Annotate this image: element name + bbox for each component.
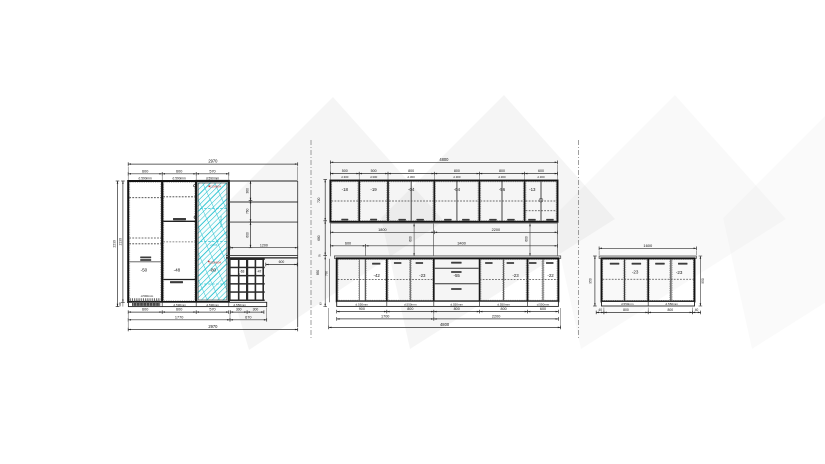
svg-text:600: 600: [524, 236, 528, 242]
svg-text:900: 900: [359, 307, 365, 311]
svg-text:600x2130: 600x2130: [219, 215, 223, 227]
svg-text:d.550mm: d.550mm: [404, 303, 417, 307]
svg-text:680: 680: [317, 235, 321, 241]
svg-text:-50: -50: [141, 267, 148, 272]
svg-text:800: 800: [499, 169, 505, 173]
svg-text:600: 600: [408, 236, 412, 242]
svg-text:100: 100: [118, 302, 122, 307]
svg-text:760: 760: [245, 208, 249, 214]
svg-text:1600: 1600: [643, 243, 653, 248]
svg-text:600: 600: [540, 307, 546, 311]
svg-text:d.590mm: d.590mm: [173, 176, 187, 180]
svg-text:d.300: d.300: [407, 175, 415, 179]
svg-text:-23: -23: [676, 270, 683, 275]
svg-text:2200: 2200: [492, 315, 500, 319]
svg-text:800: 800: [454, 169, 460, 173]
svg-text:-55: -55: [454, 273, 461, 278]
svg-text:2130: 2130: [118, 238, 122, 246]
svg-text:d.590mm: d.590mm: [207, 303, 220, 307]
svg-text:d.550mm: d.550mm: [356, 303, 369, 307]
svg-text:-19: -19: [370, 187, 377, 192]
svg-text:-23: -23: [632, 270, 639, 275]
svg-text:570: 570: [209, 169, 215, 173]
svg-text:d.550mm: d.550mm: [621, 302, 634, 306]
svg-text:600: 600: [176, 169, 182, 173]
svg-text:600: 600: [142, 169, 148, 173]
svg-text:d.300: d.300: [341, 175, 349, 179]
svg-text:950: 950: [589, 278, 593, 284]
svg-text:d.590mm: d.590mm: [174, 303, 187, 307]
svg-text:1700: 1700: [381, 315, 389, 319]
svg-text:-04: -04: [408, 187, 415, 192]
svg-text:LEDM604: LEDM604: [209, 261, 221, 265]
svg-text:d.300: d.300: [370, 175, 378, 179]
svg-text:800: 800: [501, 307, 507, 311]
svg-text:-48: -48: [174, 267, 181, 272]
svg-text:-80: -80: [209, 267, 216, 272]
svg-text:d.300: d.300: [453, 175, 461, 179]
svg-text:d.550mm: d.550mm: [497, 303, 510, 307]
svg-text:d.550mm: d.550mm: [537, 303, 550, 307]
svg-text:-56: -56: [499, 187, 506, 192]
svg-text:500: 500: [371, 169, 377, 173]
svg-text:360: 360: [245, 188, 249, 194]
svg-text:CLIMB04: CLIMB04: [210, 185, 222, 189]
svg-text:600: 600: [279, 260, 285, 264]
svg-text:2230: 2230: [113, 240, 117, 248]
svg-text:850: 850: [316, 270, 320, 276]
svg-text:-22: -22: [547, 273, 554, 278]
svg-text:-42: -42: [374, 273, 381, 278]
svg-text:-18: -18: [342, 187, 349, 192]
svg-text:-23: -23: [419, 273, 426, 278]
svg-text:d.300: d.300: [537, 175, 545, 179]
svg-text:1800: 1800: [378, 228, 386, 232]
svg-text:300: 300: [253, 308, 259, 312]
svg-text:1200: 1200: [260, 243, 268, 247]
svg-text:d.550mm: d.550mm: [234, 303, 247, 307]
svg-text:300: 300: [236, 308, 242, 312]
svg-text:d.590mm: d.590mm: [206, 176, 220, 180]
svg-text:-04: -04: [454, 187, 461, 192]
svg-text:800: 800: [454, 307, 460, 311]
svg-text:1770: 1770: [175, 315, 183, 319]
svg-text:600: 600: [245, 232, 249, 238]
svg-text:800: 800: [407, 307, 413, 311]
svg-text:2200: 2200: [492, 228, 500, 232]
svg-text:4800: 4800: [440, 322, 450, 327]
svg-text:d.590mm: d.590mm: [139, 176, 153, 180]
svg-text:d.550mm: d.550mm: [450, 303, 463, 307]
svg-text:3400: 3400: [457, 241, 465, 245]
svg-text:d.300: d.300: [498, 175, 506, 179]
svg-text:d.550mm: d.550mm: [666, 302, 679, 306]
svg-text:-13: -13: [529, 187, 536, 192]
svg-text:600: 600: [142, 308, 148, 312]
svg-text:+04.05: +04.05: [210, 244, 218, 247]
svg-text:800: 800: [408, 169, 414, 173]
svg-text:670: 670: [245, 315, 251, 319]
svg-text:800: 800: [667, 308, 673, 312]
svg-text:4800: 4800: [439, 157, 449, 162]
svg-text:950: 950: [701, 278, 705, 284]
svg-text:40: 40: [695, 308, 699, 312]
svg-text:600: 600: [345, 241, 351, 245]
svg-text:800: 800: [623, 308, 629, 312]
svg-text:2970: 2970: [208, 159, 218, 164]
svg-text:-63: -63: [240, 270, 245, 274]
svg-text:500: 500: [342, 169, 348, 173]
svg-text:-23: -23: [512, 273, 519, 278]
svg-text:d.590mm: d.590mm: [141, 294, 154, 298]
svg-text:600: 600: [538, 169, 544, 173]
svg-text:-47: -47: [257, 269, 262, 273]
svg-text:720: 720: [317, 197, 321, 203]
svg-text:570: 570: [209, 308, 215, 312]
svg-text:2970: 2970: [208, 324, 218, 329]
svg-text:600: 600: [176, 308, 182, 312]
svg-text:760: 760: [324, 271, 328, 276]
svg-text:40: 40: [598, 308, 602, 312]
